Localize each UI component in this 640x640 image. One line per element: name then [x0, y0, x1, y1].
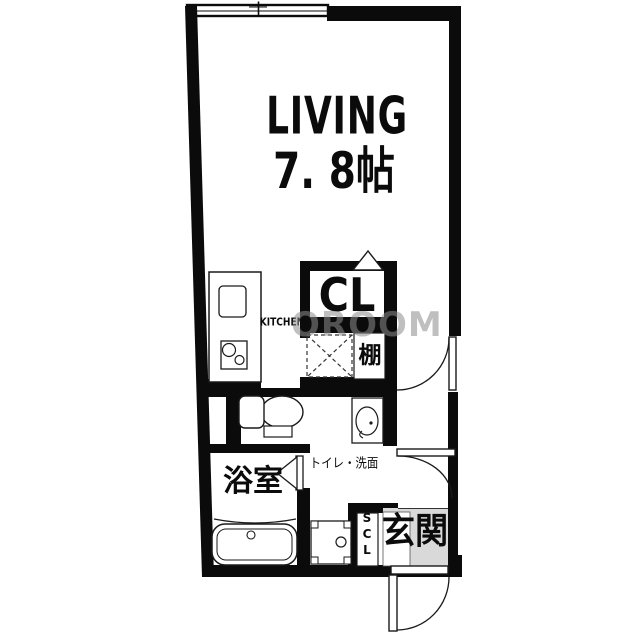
living-room-label: LIVING — [266, 90, 408, 142]
toilet-washroom-label: トイレ・洗面 — [310, 458, 379, 471]
kitchen-counter — [209, 272, 261, 382]
shelf-label: 棚 — [359, 345, 382, 368]
floor-plan: LIVING 7. 8帖 KITCHEN CL 棚 トイレ・洗面 浴室 玄関 S… — [0, 0, 640, 640]
living-room-size: 7. 8帖 — [273, 146, 395, 196]
entrance-label: 玄関 — [382, 514, 448, 550]
right-wall-upper — [449, 6, 461, 336]
washbasin-side-wall — [383, 388, 397, 446]
bathtub — [212, 519, 297, 565]
shelf-bottom-wall — [300, 377, 397, 397]
top-wall — [327, 6, 461, 21]
bath-toilet-wall — [205, 444, 310, 453]
washbasin — [352, 398, 383, 443]
watermark: OROOM — [291, 308, 443, 342]
entrance-inner-door — [397, 449, 455, 498]
bath-right-wall — [297, 488, 310, 566]
bathroom-label: 浴室 — [223, 467, 283, 497]
window — [187, 2, 328, 17]
kitchen-sink — [219, 286, 246, 317]
toilet — [239, 396, 303, 437]
stove — [221, 341, 247, 369]
shoe-closet-label: SCL — [361, 511, 373, 559]
washing-machine-pan — [311, 521, 351, 564]
